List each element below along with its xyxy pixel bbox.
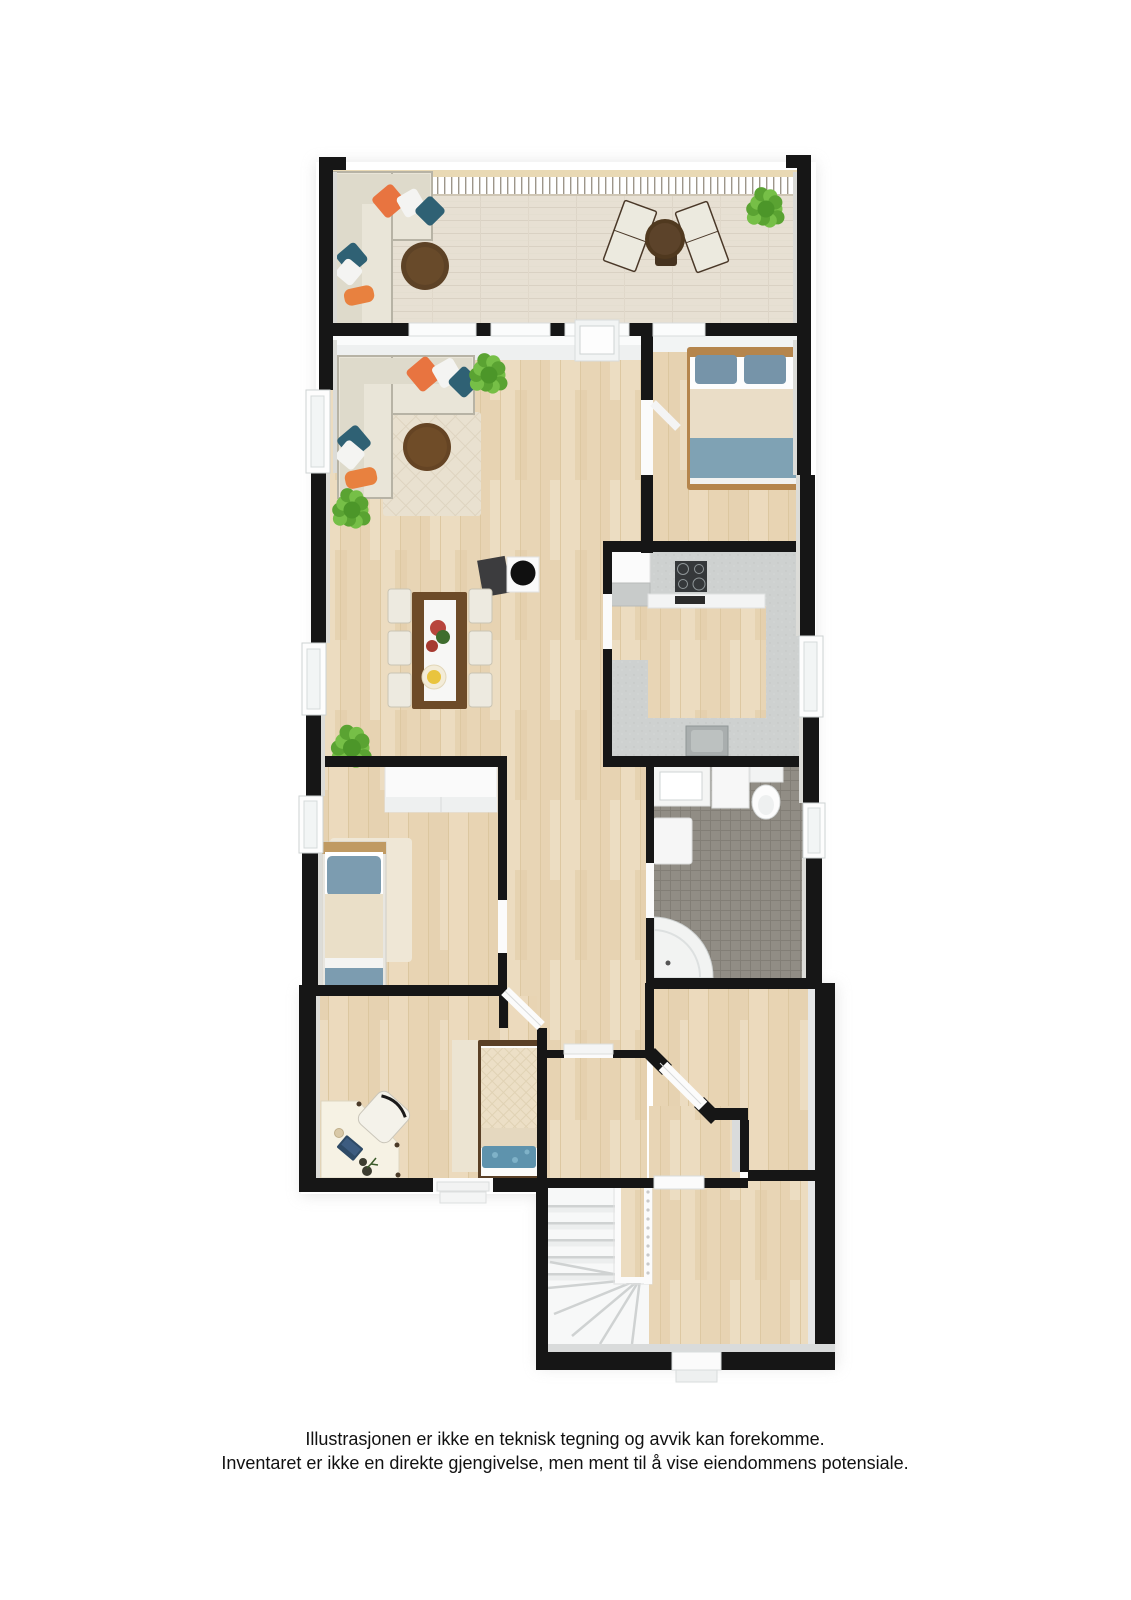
svg-text:Illustrasjonen er ikke en tekn: Illustrasjonen er ikke en teknisk tegnin…: [305, 1429, 824, 1449]
svg-text:Inventaret er ikke en direkte: Inventaret er ikke en direkte gjengivels…: [221, 1453, 908, 1473]
